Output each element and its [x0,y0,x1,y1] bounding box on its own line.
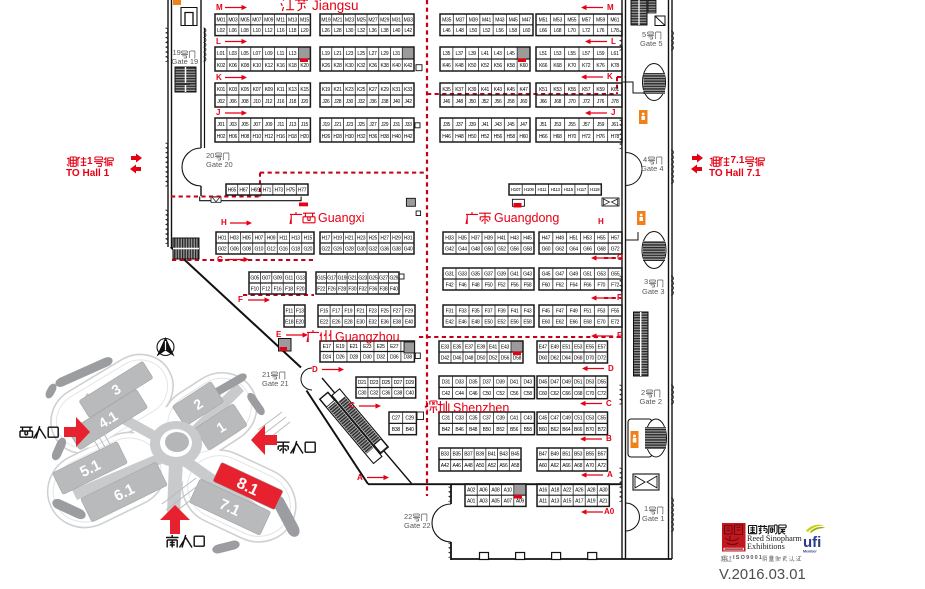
svg-text:J78: J78 [611,99,619,105]
svg-text:L23: L23 [346,51,354,57]
svg-text:B37: B37 [464,452,473,458]
svg-text:K68: K68 [553,63,562,69]
svg-text:G19: G19 [337,275,346,281]
svg-text:J26: J26 [322,99,330,105]
svg-text:A28: A28 [587,487,596,493]
svg-text:M55: M55 [567,17,576,23]
svg-text:G42: G42 [445,246,454,252]
svg-text:J70: J70 [568,99,576,105]
svg-text:J18: J18 [289,99,297,105]
svg-text:L43: L43 [494,51,502,57]
svg-text:H113: H113 [550,187,560,192]
svg-text:K25: K25 [357,87,366,93]
svg-text:H46: H46 [442,134,451,140]
svg-text:K12: K12 [265,63,274,69]
svg-text:F48: F48 [471,282,479,288]
svg-text:H35: H35 [458,235,467,241]
svg-text:C60: C60 [538,390,547,396]
svg-text:B38: B38 [392,427,401,433]
svg-text:H76: H76 [596,134,605,140]
svg-text:F35: F35 [471,308,479,314]
svg-text:C37: C37 [483,415,492,421]
svg-text:M61: M61 [610,17,619,23]
svg-text:J31: J31 [393,122,401,128]
svg-text:A13: A13 [551,498,560,504]
svg-text:B64: B64 [562,427,571,433]
svg-text:L05: L05 [241,51,249,57]
svg-text:K39: K39 [468,87,477,93]
svg-text:A48: A48 [464,463,473,469]
svg-text:H43: H43 [510,235,519,241]
svg-text:F39: F39 [497,308,505,314]
svg-text:L25: L25 [357,51,365,57]
svg-text:M29: M29 [380,17,389,23]
svg-text:B42: B42 [442,427,451,433]
svg-text:F42: F42 [445,282,453,288]
svg-text:K37: K37 [455,87,464,93]
svg-text:J35: J35 [443,122,451,128]
svg-text:A26: A26 [575,487,584,493]
svg-text:K45: K45 [507,87,516,93]
svg-text:G27: G27 [379,275,388,281]
svg-text:H08: H08 [241,134,250,140]
svg-text:G11: G11 [285,275,294,281]
svg-text:L52: L52 [483,28,491,34]
svg-text:D64: D64 [562,355,571,361]
svg-text:K13: K13 [289,87,298,93]
svg-text:A09: A09 [515,498,524,504]
svg-text:A52: A52 [488,463,497,469]
svg-text:L70: L70 [568,28,576,34]
svg-text:C29: C29 [405,415,414,421]
svg-text:H30: H30 [345,134,354,140]
svg-text:J36: J36 [369,99,377,105]
svg-text:J33: J33 [404,122,412,128]
svg-text:D70: D70 [585,355,594,361]
svg-text:A03: A03 [479,498,488,504]
svg-text:E72: E72 [611,319,620,325]
svg-text:H13: H13 [291,235,300,241]
svg-text:B46: B46 [455,427,464,433]
svg-text:L27: L27 [369,51,377,57]
svg-text:K09: K09 [265,87,274,93]
svg-text:K53: K53 [553,87,562,93]
svg-text:J55: J55 [568,122,576,128]
svg-text:L41: L41 [481,51,489,57]
svg-text:K59: K59 [596,87,605,93]
svg-text:L18: L18 [289,28,297,34]
svg-text:K46: K46 [442,63,451,69]
svg-text:G22: G22 [322,246,331,252]
svg-text:G15: G15 [317,275,326,281]
svg-text:L51: L51 [539,51,547,57]
svg-text:C36: C36 [381,391,390,397]
svg-text:H68: H68 [553,134,562,140]
svg-text:A16: A16 [539,487,548,493]
svg-text:E27: E27 [390,344,399,350]
svg-text:H21: H21 [345,235,354,241]
svg-text:K55: K55 [568,87,577,93]
svg-text:G39: G39 [497,271,506,277]
svg-text:F15: F15 [320,308,328,314]
svg-text:G13: G13 [296,275,305,281]
svg-text:H11: H11 [279,235,288,241]
svg-text:J29: J29 [381,122,389,128]
svg-text:H26: H26 [322,134,331,140]
svg-text:J38: J38 [381,99,389,105]
svg-text:J66: J66 [540,99,548,105]
svg-text:B49: B49 [550,452,559,458]
svg-text:F12: F12 [262,286,270,292]
svg-text:G58: G58 [523,246,532,252]
svg-text:H10: H10 [253,134,262,140]
svg-text:F45: F45 [542,308,550,314]
svg-text:B40: B40 [405,427,414,433]
svg-text:F20: F20 [296,286,304,292]
svg-text:F47: F47 [556,308,564,314]
svg-text:F52: F52 [497,282,505,288]
svg-text:C41: C41 [510,415,519,421]
svg-text:K29: K29 [381,87,390,93]
svg-text:J58: J58 [507,99,515,105]
svg-text:M27: M27 [368,17,377,23]
svg-text:K66: K66 [539,63,548,69]
svg-text:L58: L58 [509,28,517,34]
svg-text:C35: C35 [469,415,478,421]
svg-text:H48: H48 [455,134,464,140]
svg-text:E42: E42 [445,319,454,325]
svg-text:G36: G36 [380,246,389,252]
svg-text:C45: C45 [538,415,547,421]
svg-text:L56: L56 [496,28,504,34]
svg-text:L29: L29 [381,51,389,57]
svg-text:M41: M41 [482,17,491,23]
svg-text:J15: J15 [301,122,309,128]
svg-text:G40: G40 [404,246,413,252]
svg-text:A50: A50 [476,463,485,469]
svg-text:J61: J61 [611,122,619,128]
svg-text:C70: C70 [585,390,594,396]
svg-text:F21: F21 [357,308,365,314]
svg-text:D35: D35 [469,379,478,385]
svg-text:B72: B72 [597,427,606,433]
svg-text:H17: H17 [322,235,331,241]
svg-text:J13: J13 [289,122,297,128]
svg-text:G55: G55 [611,271,620,277]
svg-text:K07: K07 [253,87,262,93]
svg-text:K70: K70 [568,63,577,69]
svg-text:K06: K06 [229,63,238,69]
svg-text:D24: D24 [322,355,331,361]
svg-text:D30: D30 [363,355,372,361]
svg-text:D51: D51 [574,379,583,385]
svg-text:K19: K19 [322,87,331,93]
svg-text:L66: L66 [539,28,547,34]
svg-text:C50: C50 [483,390,492,396]
svg-text:L16: L16 [277,28,285,34]
svg-text:K38: K38 [381,63,390,69]
svg-text:L13: L13 [289,51,297,57]
svg-text:E47: E47 [539,344,548,350]
svg-text:F43: F43 [523,308,531,314]
svg-text:F25: F25 [381,308,389,314]
svg-text:K78: K78 [611,63,620,69]
svg-text:H38: H38 [380,134,389,140]
svg-text:J47: J47 [520,122,528,128]
svg-text:F55: F55 [611,308,619,314]
svg-text:G56: G56 [510,246,519,252]
svg-text:J11: J11 [277,122,284,128]
svg-text:H18: H18 [288,134,297,140]
svg-text:A02: A02 [467,487,476,493]
svg-text:G44: G44 [458,246,467,252]
svg-text:K27: K27 [369,87,378,93]
svg-text:G23: G23 [358,275,367,281]
svg-text:M45: M45 [509,17,518,23]
svg-text:H37: H37 [471,235,480,241]
svg-text:J10: J10 [253,99,261,105]
svg-text:E49: E49 [550,344,559,350]
svg-text:K57: K57 [582,87,591,93]
svg-text:J48: J48 [456,99,464,105]
svg-text:M11: M11 [276,17,285,23]
svg-text:H107: H107 [511,187,521,192]
svg-text:G32: G32 [369,246,378,252]
svg-text:G18: G18 [291,246,300,252]
svg-text:J59: J59 [597,122,605,128]
svg-text:M31: M31 [392,17,401,23]
svg-text:D32: D32 [376,355,385,361]
svg-text:G52: G52 [497,246,506,252]
svg-text:H55: H55 [597,235,606,241]
svg-text:J02: J02 [217,99,225,105]
svg-text:H39: H39 [484,235,493,241]
svg-text:J37: J37 [456,122,464,128]
svg-text:K01: K01 [217,87,226,93]
svg-text:M15: M15 [300,17,309,23]
svg-text:L78: L78 [611,28,619,34]
svg-text:J56: J56 [494,99,502,105]
svg-text:F46: F46 [458,282,466,288]
svg-text:A21: A21 [599,498,608,504]
svg-text:D46: D46 [453,355,462,361]
svg-text:F62: F62 [556,282,564,288]
svg-text:D68: D68 [574,355,583,361]
svg-text:H69: H69 [251,187,260,193]
svg-text:C31: C31 [442,415,451,421]
svg-text:G26: G26 [333,246,342,252]
svg-text:K31: K31 [392,87,401,93]
svg-text:J05: J05 [241,122,249,128]
svg-text:J23: J23 [346,122,354,128]
svg-text:H77: H77 [298,187,307,193]
svg-text:G16: G16 [279,246,288,252]
svg-text:E21: E21 [349,344,358,350]
svg-text:F50: F50 [484,282,492,288]
svg-text:L09: L09 [265,51,273,57]
svg-text:F51: F51 [583,308,591,314]
svg-text:G38: G38 [392,246,401,252]
svg-text:K48: K48 [455,63,464,69]
svg-text:H02: H02 [217,134,226,140]
svg-text:K05: K05 [241,87,250,93]
svg-text:G28: G28 [345,246,354,252]
svg-text:F37: F37 [484,308,492,314]
svg-text:M09: M09 [264,17,273,23]
svg-text:L57: L57 [582,51,590,57]
svg-text:D72: D72 [597,355,606,361]
svg-text:B57: B57 [597,452,606,458]
svg-text:L26: L26 [322,28,330,34]
svg-text:D53: D53 [585,379,594,385]
svg-text:G20: G20 [303,246,312,252]
svg-text:H109: H109 [524,187,534,192]
svg-text:E17: E17 [322,344,331,350]
svg-text:G64: G64 [569,246,578,252]
svg-text:G31: G31 [445,271,454,277]
svg-text:C68: C68 [574,390,583,396]
svg-text:E25: E25 [376,344,385,350]
svg-text:K56: K56 [494,63,503,69]
svg-text:D41: D41 [510,379,519,385]
svg-text:L32: L32 [357,28,365,34]
svg-text:H19: H19 [333,235,342,241]
svg-text:A06: A06 [479,487,488,493]
svg-text:J50: J50 [468,99,476,105]
svg-text:C47: C47 [550,415,559,421]
svg-text:G41: G41 [510,271,519,277]
svg-text:E40: E40 [405,319,414,325]
svg-text:E55: E55 [586,344,595,350]
svg-text:F38: F38 [379,286,387,292]
svg-text:F36: F36 [369,286,377,292]
svg-text:A62: A62 [550,463,559,469]
svg-text:F29: F29 [405,308,413,314]
svg-text:K41: K41 [481,87,490,93]
svg-text:M51: M51 [539,17,548,23]
svg-text:G37: G37 [484,271,493,277]
svg-text:M47: M47 [522,17,531,23]
svg-text:E29: E29 [403,344,412,350]
svg-text:J12: J12 [265,99,273,105]
svg-text:C38: C38 [393,391,402,397]
svg-text:J42: J42 [404,99,412,105]
svg-text:M25: M25 [357,17,366,23]
svg-text:F30: F30 [348,286,356,292]
svg-text:E33: E33 [441,344,450,350]
svg-text:G68: G68 [597,246,606,252]
svg-text:B47: B47 [539,452,548,458]
svg-text:A42: A42 [441,463,450,469]
svg-text:J25: J25 [357,122,365,128]
svg-text:E60: E60 [542,319,551,325]
svg-text:A08: A08 [491,487,500,493]
svg-text:C33: C33 [455,415,464,421]
svg-text:H73: H73 [274,187,283,193]
svg-text:K03: K03 [229,87,238,93]
svg-text:H111: H111 [537,187,547,192]
svg-text:G60: G60 [541,246,550,252]
svg-text:F17: F17 [333,308,341,314]
svg-text:F23: F23 [369,308,377,314]
svg-text:K11: K11 [277,87,285,93]
svg-text:E39: E39 [477,344,486,350]
svg-text:D28: D28 [349,355,358,361]
svg-text:J07: J07 [253,122,261,128]
svg-text:A58: A58 [511,463,520,469]
svg-text:G05: G05 [250,275,259,281]
svg-text:E22: E22 [320,319,329,325]
svg-text:F19: F19 [345,308,353,314]
svg-text:J27: J27 [369,122,377,128]
svg-text:D45: D45 [538,379,547,385]
svg-text:K51: K51 [539,87,548,93]
svg-text:A68: A68 [574,463,583,469]
svg-text:F58: F58 [523,282,531,288]
svg-text:G53: G53 [597,271,606,277]
svg-text:H07: H07 [254,235,263,241]
svg-text:K16: K16 [277,63,286,69]
svg-text:H71: H71 [263,187,272,193]
svg-text:D48: D48 [465,355,474,361]
svg-text:G08: G08 [242,246,251,252]
svg-text:L40: L40 [393,28,401,34]
svg-text:L07: L07 [253,51,261,57]
svg-text:C42: C42 [442,390,451,396]
svg-text:E68: E68 [583,319,592,325]
svg-text:G10: G10 [254,246,263,252]
svg-text:B60: B60 [539,427,548,433]
svg-text:F40: F40 [390,286,398,292]
svg-text:A15: A15 [563,498,572,504]
svg-text:A56: A56 [499,463,508,469]
svg-text:D55: D55 [597,379,606,385]
svg-text:E70: E70 [597,319,606,325]
svg-text:L76: L76 [597,28,605,34]
svg-text:H32: H32 [357,134,366,140]
svg-text:D23: D23 [369,380,378,386]
svg-text:H20: H20 [300,134,309,140]
svg-text:E26: E26 [332,319,341,325]
svg-text:A72: A72 [597,463,606,469]
svg-text:F66: F66 [583,282,591,288]
svg-text:E57: E57 [597,344,606,350]
svg-text:D25: D25 [381,380,390,386]
svg-text:K50: K50 [468,63,477,69]
svg-text:C66: C66 [562,390,571,396]
svg-text:D56: D56 [501,355,510,361]
svg-text:L61: L61 [611,51,619,57]
svg-text:H31: H31 [404,235,413,241]
svg-text:H53: H53 [583,235,592,241]
svg-text:E52: E52 [497,319,506,325]
svg-text:J32: J32 [357,99,365,105]
svg-text:G62: G62 [555,246,564,252]
svg-text:B58: B58 [524,427,533,433]
svg-text:C62: C62 [550,390,559,396]
svg-text:A30: A30 [599,487,608,493]
svg-text:J06: J06 [229,99,237,105]
svg-text:F64: F64 [569,282,577,288]
svg-text:J41: J41 [481,122,489,128]
svg-text:J57: J57 [583,122,591,128]
svg-text:L08: L08 [241,28,249,34]
svg-text:K20: K20 [301,63,310,69]
svg-text:J39: J39 [468,122,476,128]
svg-text:M35: M35 [442,17,451,23]
svg-text:C56: C56 [510,390,519,396]
svg-text:H47: H47 [541,235,550,241]
